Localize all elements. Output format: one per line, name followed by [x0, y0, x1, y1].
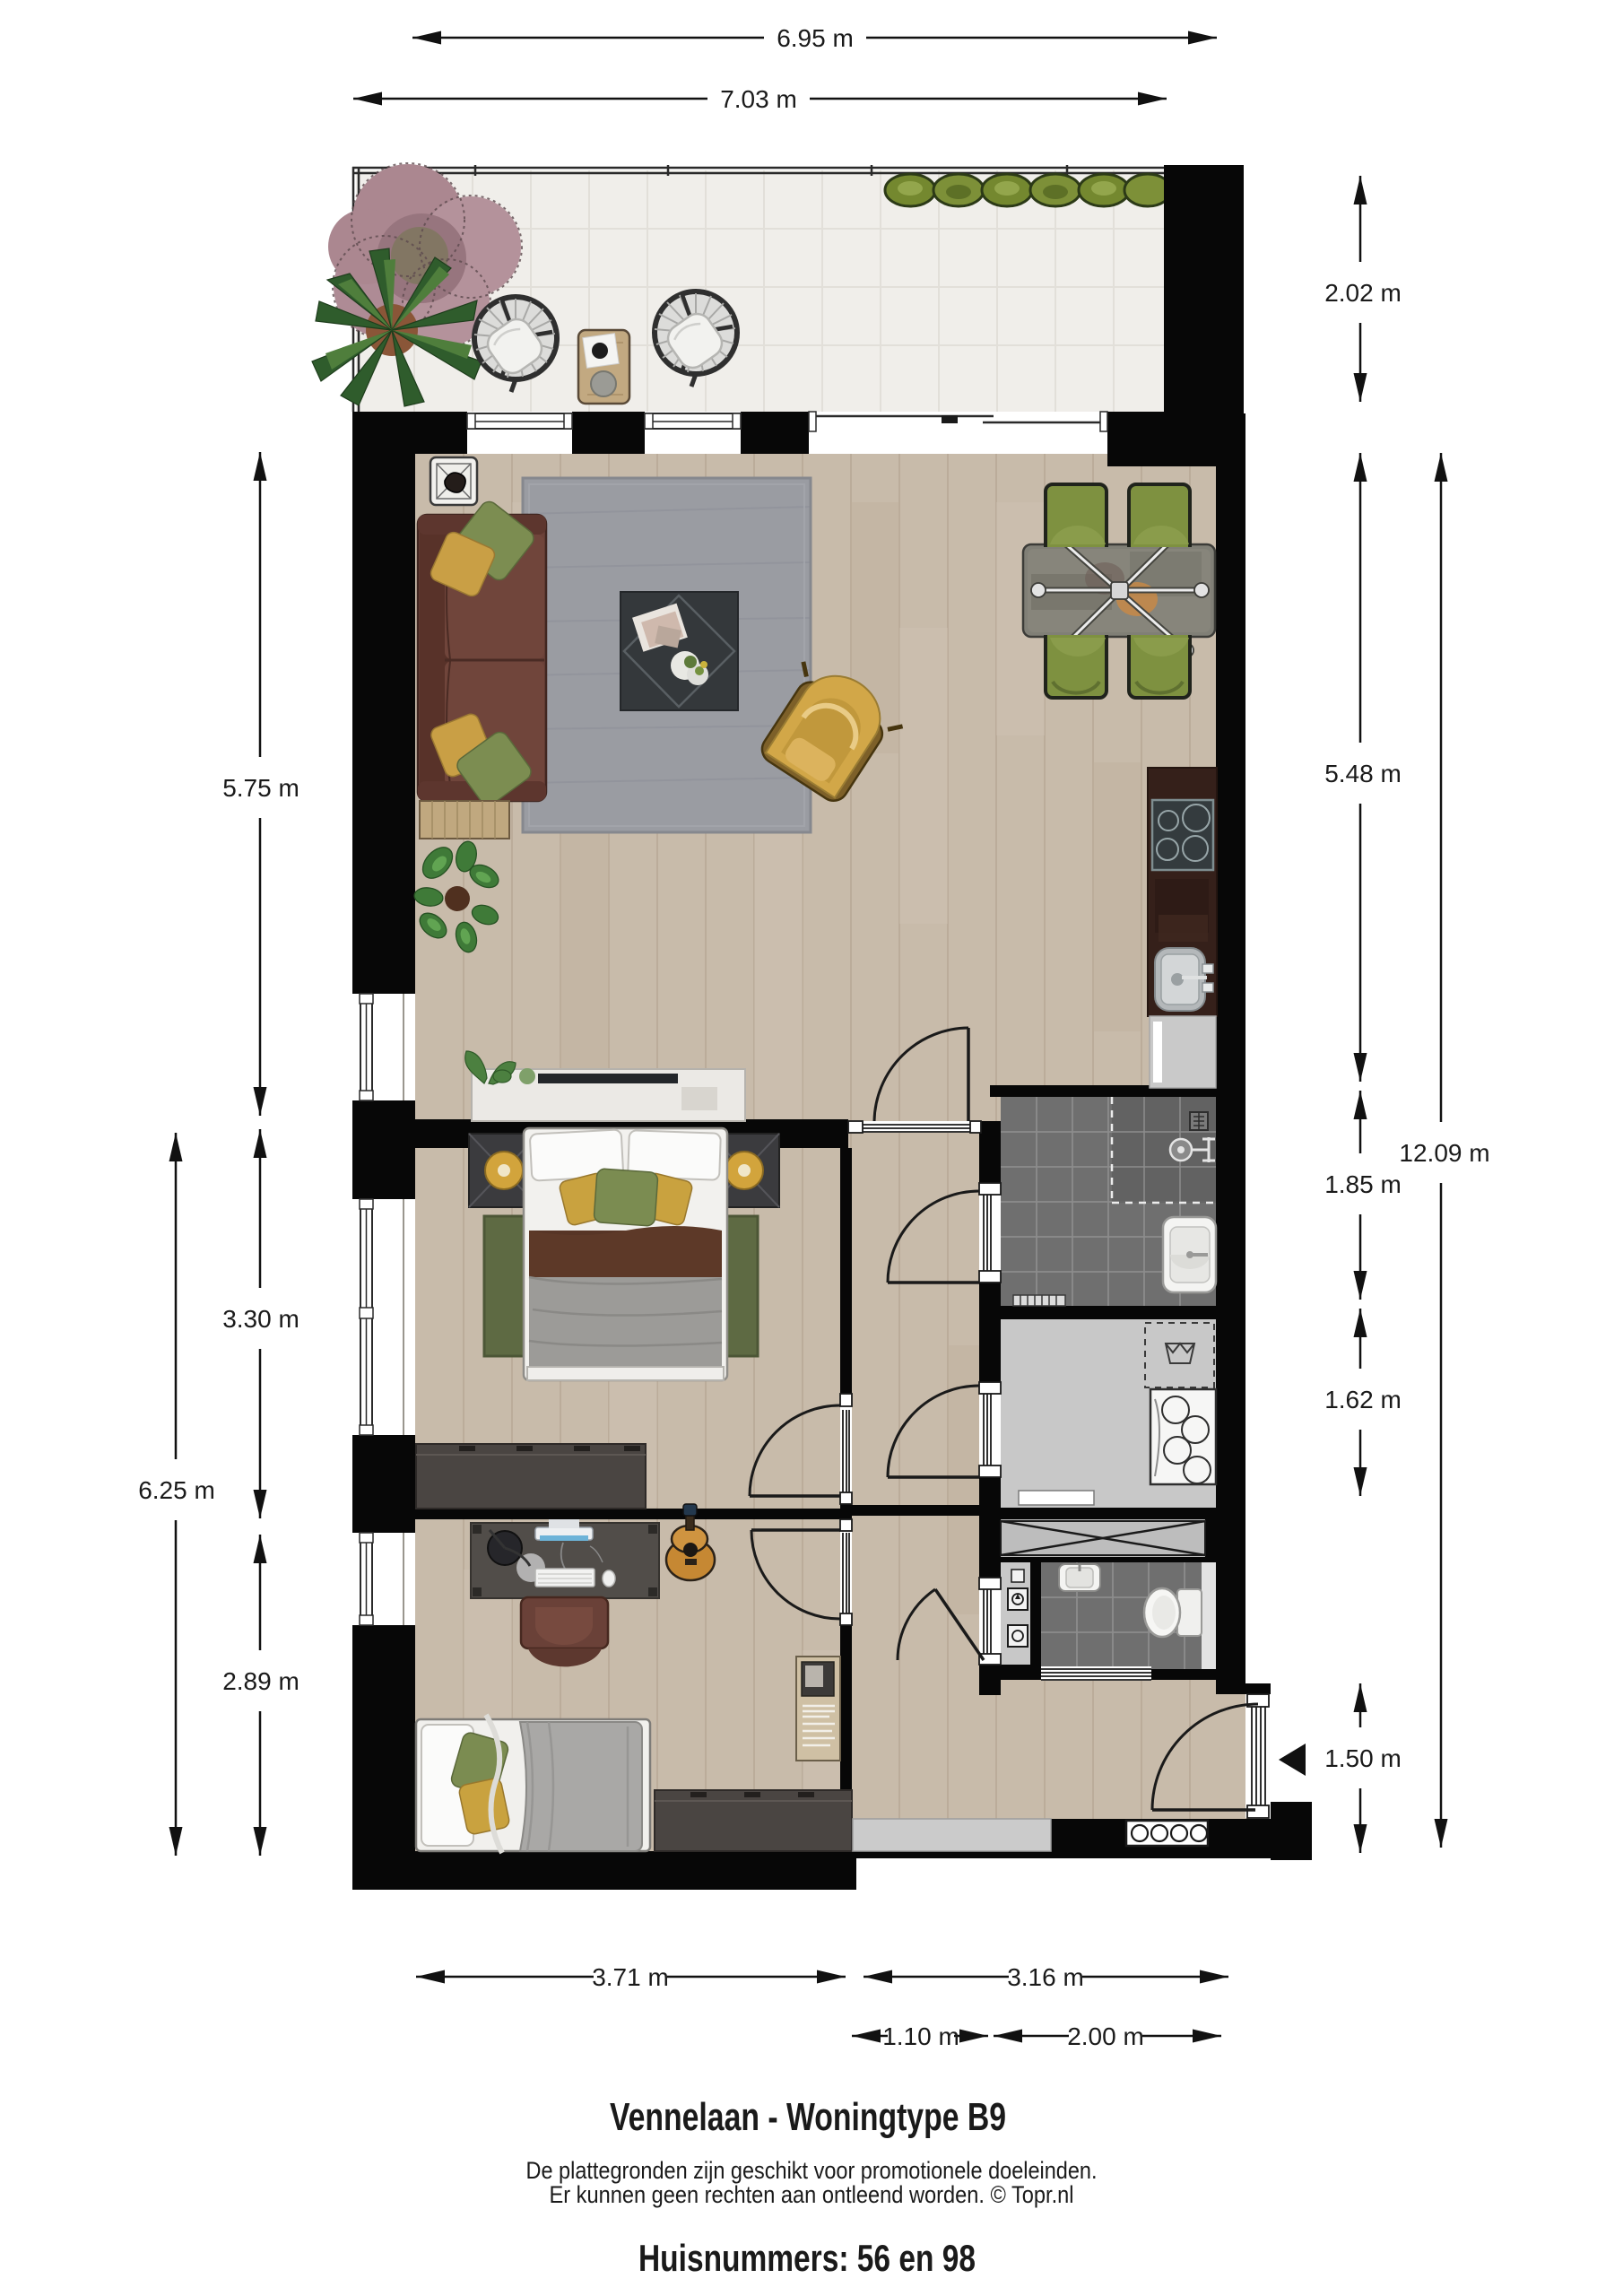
svg-text:2.02 m: 2.02 m	[1324, 279, 1402, 307]
svg-text:De plattegronden zijn geschikt: De plattegronden zijn geschikt voor prom…	[526, 2157, 1098, 2184]
svg-text:2.89 m: 2.89 m	[222, 1667, 299, 1695]
svg-text:1.85 m: 1.85 m	[1324, 1170, 1402, 1198]
svg-text:6.25 m: 6.25 m	[138, 1476, 215, 1504]
svg-text:5.75 m: 5.75 m	[222, 774, 299, 802]
svg-text:1.10 m: 1.10 m	[882, 2022, 959, 2050]
svg-text:5.48 m: 5.48 m	[1324, 760, 1402, 787]
svg-text:2.00 m: 2.00 m	[1067, 2022, 1144, 2050]
svg-text:Er kunnen geen rechten aan ont: Er kunnen geen rechten aan ontleend word…	[550, 2181, 1074, 2208]
svg-text:3.16 m: 3.16 m	[1007, 1963, 1084, 1991]
svg-text:1.62 m: 1.62 m	[1324, 1386, 1402, 1413]
svg-text:7.03 m: 7.03 m	[720, 85, 797, 113]
svg-text:3.30 m: 3.30 m	[222, 1305, 299, 1333]
svg-text:1.50 m: 1.50 m	[1324, 1744, 1402, 1772]
svg-text:Vennelaan - Woningtype B9: Vennelaan - Woningtype B9	[610, 2095, 1006, 2139]
svg-text:3.71 m: 3.71 m	[592, 1963, 669, 1991]
svg-text:12.09 m: 12.09 m	[1399, 1139, 1489, 1167]
svg-text:6.95 m: 6.95 m	[777, 24, 854, 52]
svg-text:Huisnummers: 56 en 98: Huisnummers: 56 en 98	[638, 2237, 976, 2279]
